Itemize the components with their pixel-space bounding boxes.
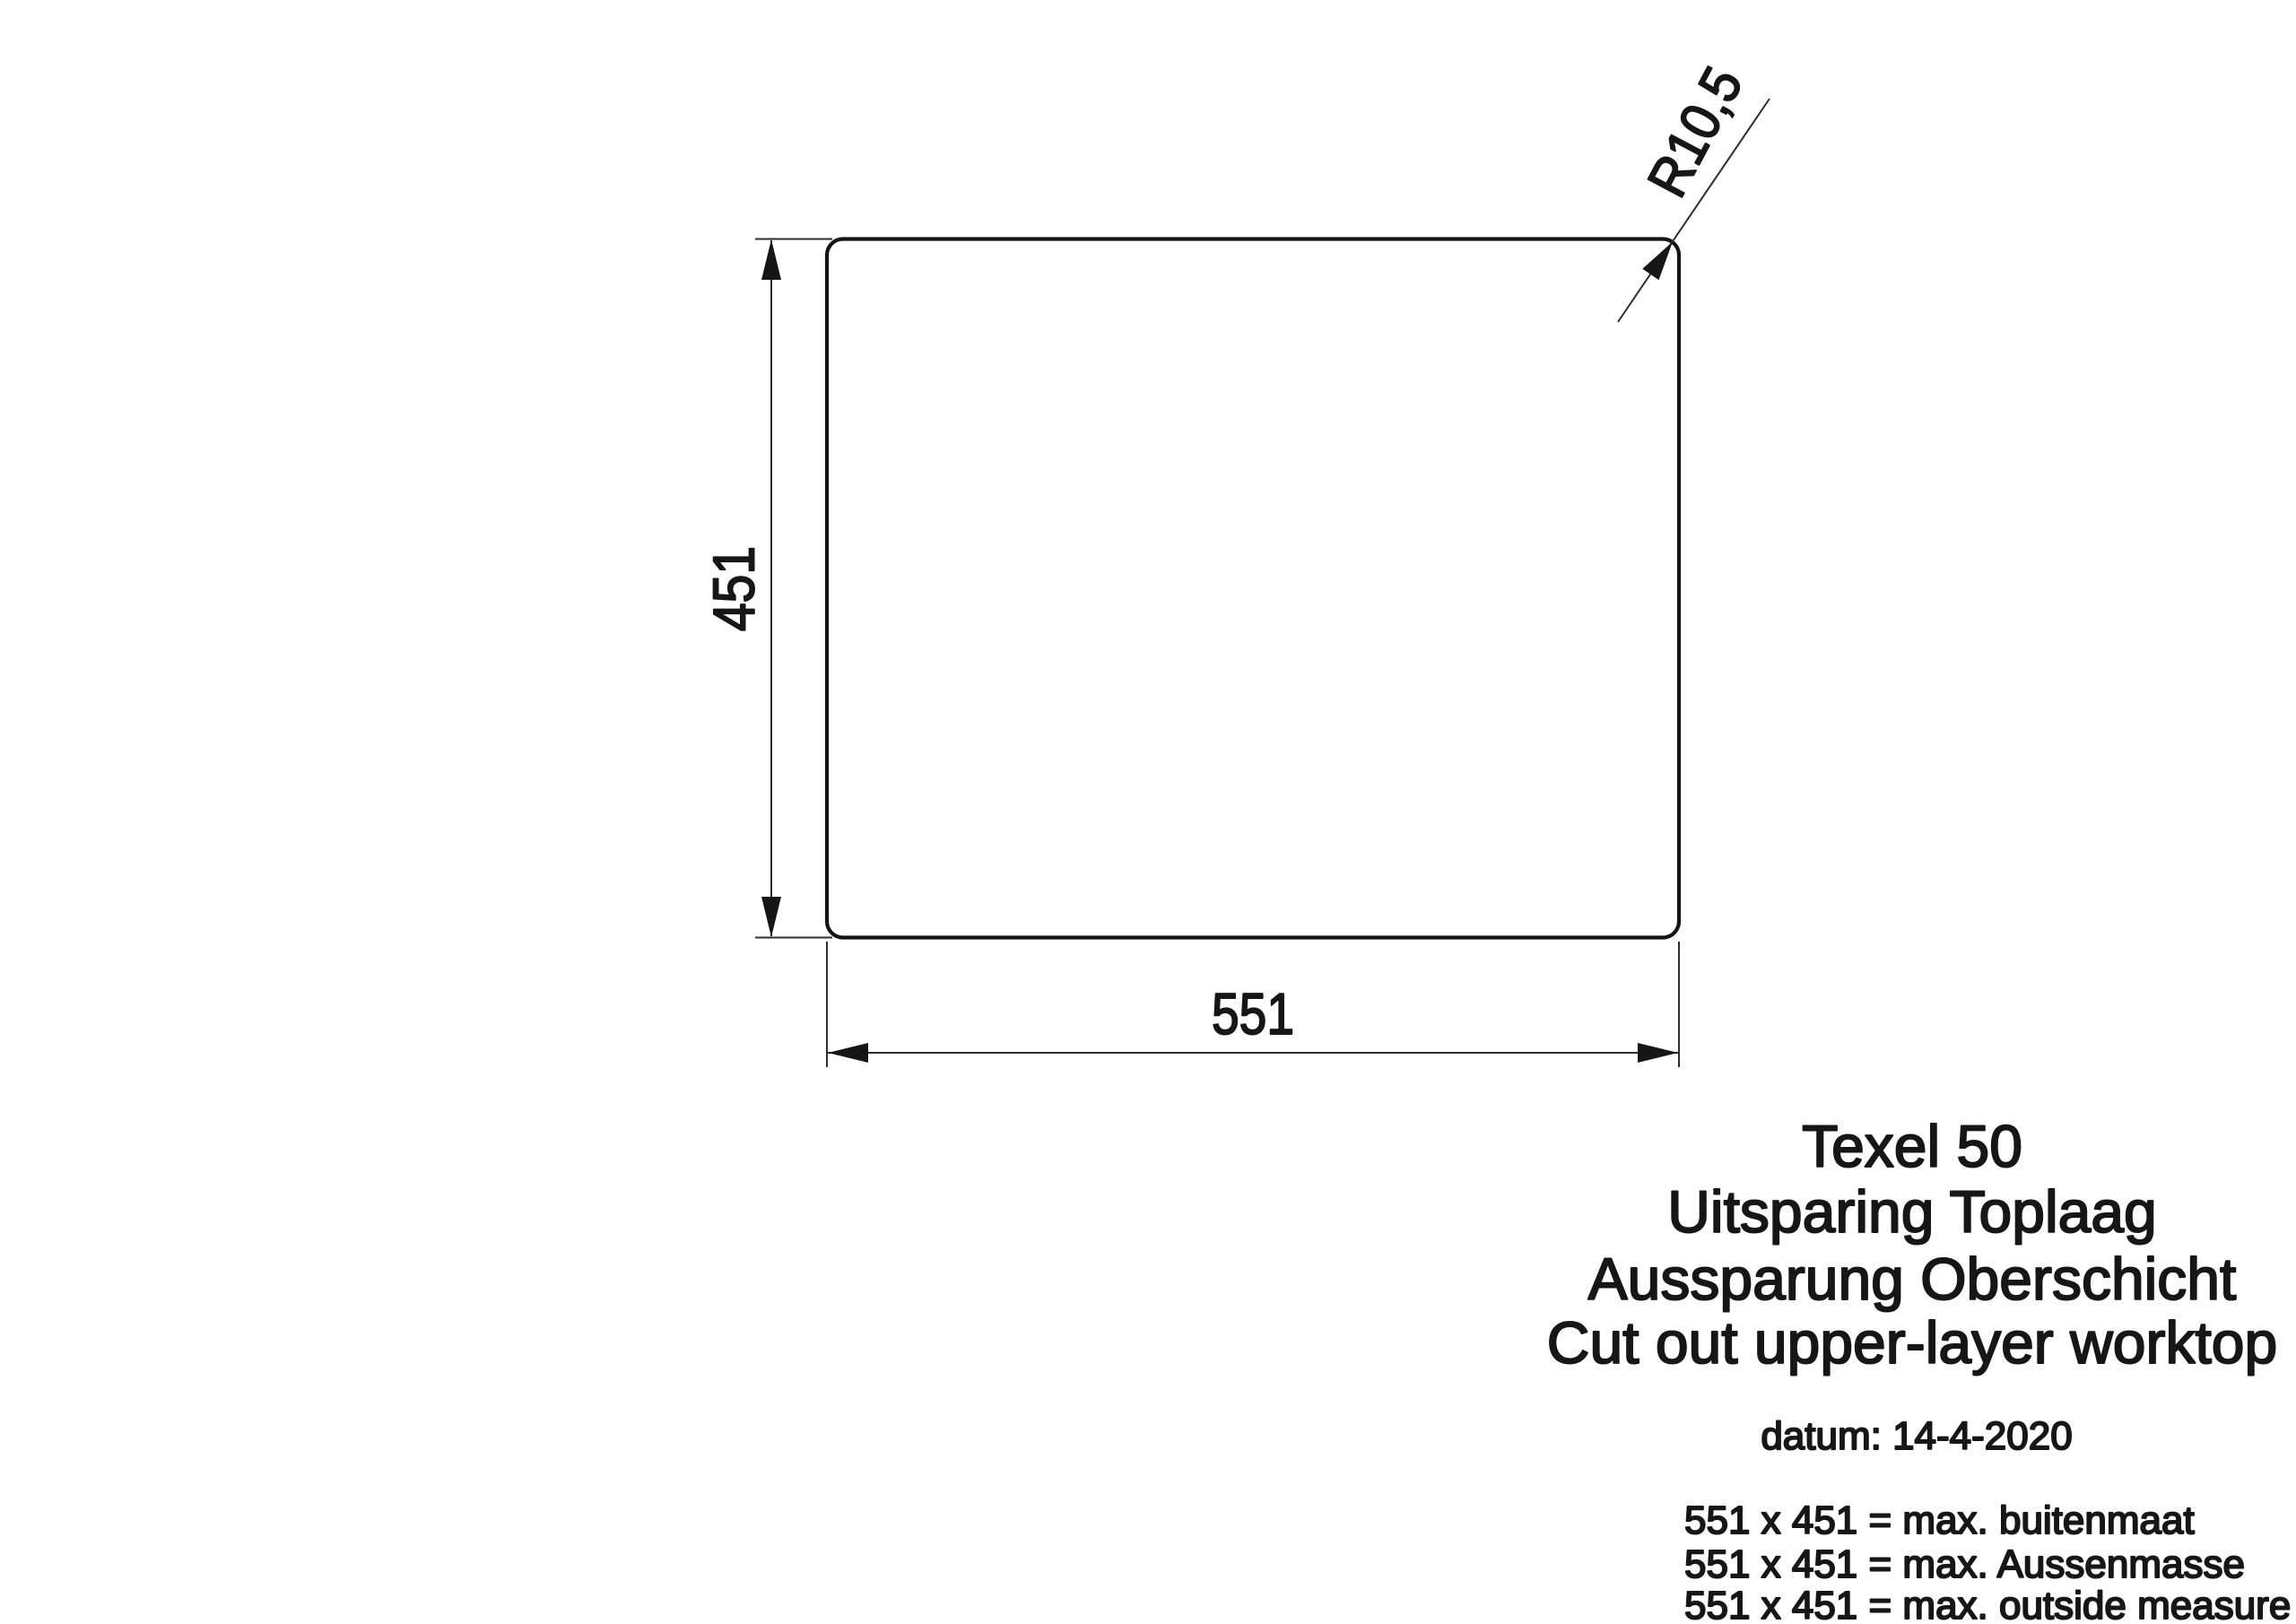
svg-text:Aussparung Oberschicht: Aussparung Oberschicht (1588, 1246, 2237, 1312)
svg-text:Texel 50: Texel 50 (1802, 1113, 2022, 1179)
svg-text:551: 551 (1212, 981, 1294, 1046)
svg-text:551 x 451 = max. Aussenmasse: 551 x 451 = max. Aussenmasse (1684, 1542, 2245, 1586)
svg-text:451: 451 (701, 546, 767, 631)
svg-text:Uitsparing Toplaag: Uitsparing Toplaag (1667, 1178, 2156, 1245)
svg-text:Cut out upper-layer worktop: Cut out upper-layer worktop (1547, 1309, 2277, 1376)
svg-text:551 x 451 = max. outside measu: 551 x 451 = max. outside measure (1684, 1584, 2291, 1624)
svg-text:datum: 14-4-2020: datum: 14-4-2020 (1761, 1414, 2072, 1458)
svg-text:551 x 451 = max. buitenmaat: 551 x 451 = max. buitenmaat (1684, 1498, 2195, 1542)
